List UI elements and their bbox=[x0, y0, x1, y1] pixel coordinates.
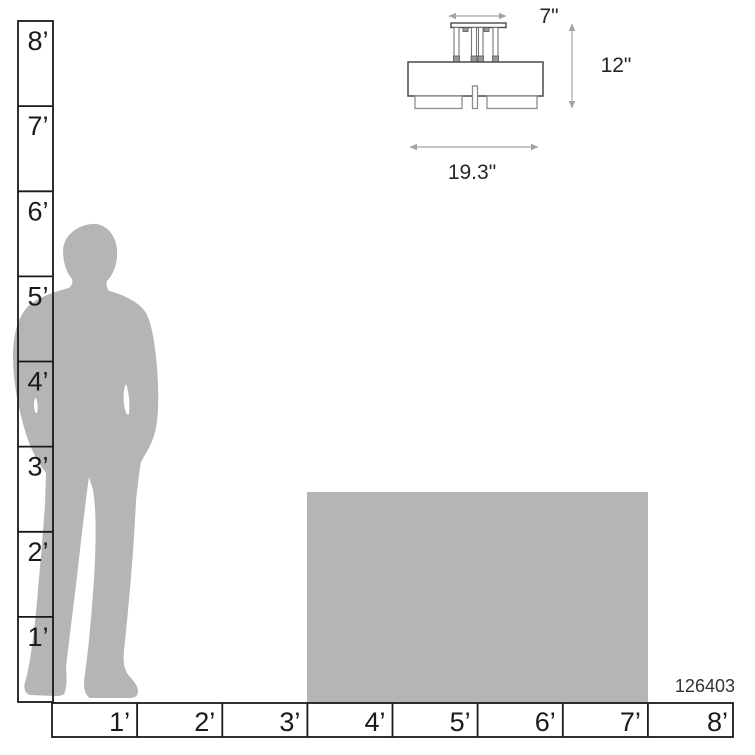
ruler-label-7ft-h: 7’ bbox=[620, 707, 641, 737]
diagram-canvas: 8’ 7’ 6’ 5’ 4’ 3’ 2’ 1’ 1’ 2’ 3’ 4’ 5’ 6… bbox=[0, 0, 755, 755]
ruler-label-6ft: 6’ bbox=[27, 196, 48, 226]
ruler-label-4ft-h: 4’ bbox=[364, 707, 385, 737]
ruler-label-1ft-h: 1’ bbox=[109, 707, 130, 737]
ruler-label-5ft: 5’ bbox=[27, 281, 48, 311]
ruler-label-8ft-h: 8’ bbox=[707, 707, 728, 737]
product-code: 126403 bbox=[675, 676, 735, 696]
fixture-nub bbox=[484, 28, 489, 32]
fixture-rod-foot bbox=[493, 56, 499, 62]
ruler-label-2ft-h: 2’ bbox=[194, 707, 215, 737]
ruler-label-2ft: 2’ bbox=[27, 537, 48, 567]
fixture-center-stem bbox=[473, 86, 478, 109]
fixture-diffuser-right bbox=[487, 96, 537, 109]
canopy-width-value: 7" bbox=[539, 5, 558, 28]
ruler-label-8ft: 8’ bbox=[27, 26, 48, 56]
fixture-rod-foot bbox=[478, 56, 484, 62]
scale-diagram: 8’ 7’ 6’ 5’ 4’ 3’ 2’ 1’ 1’ 2’ 3’ 4’ 5’ 6… bbox=[0, 0, 755, 755]
ruler-label-7ft: 7’ bbox=[27, 111, 48, 141]
fixture-canopy bbox=[451, 23, 506, 28]
fixture-diffuser-left bbox=[415, 96, 462, 109]
fixture-rod-foot bbox=[454, 56, 460, 62]
ruler-label-5ft-h: 5’ bbox=[450, 707, 471, 737]
ruler-label-4ft: 4’ bbox=[27, 367, 48, 397]
furniture-box bbox=[307, 492, 648, 703]
ruler-label-1ft: 1’ bbox=[27, 622, 48, 652]
ruler-label-3ft: 3’ bbox=[27, 452, 48, 482]
ruler-label-6ft-h: 6’ bbox=[535, 707, 556, 737]
fixture-nub bbox=[463, 28, 468, 32]
fixture-rod-foot bbox=[471, 56, 477, 62]
shade-width-value: 19.3" bbox=[448, 161, 496, 184]
fixture-height-value: 12" bbox=[601, 54, 632, 77]
ruler-label-3ft-h: 3’ bbox=[279, 707, 300, 737]
